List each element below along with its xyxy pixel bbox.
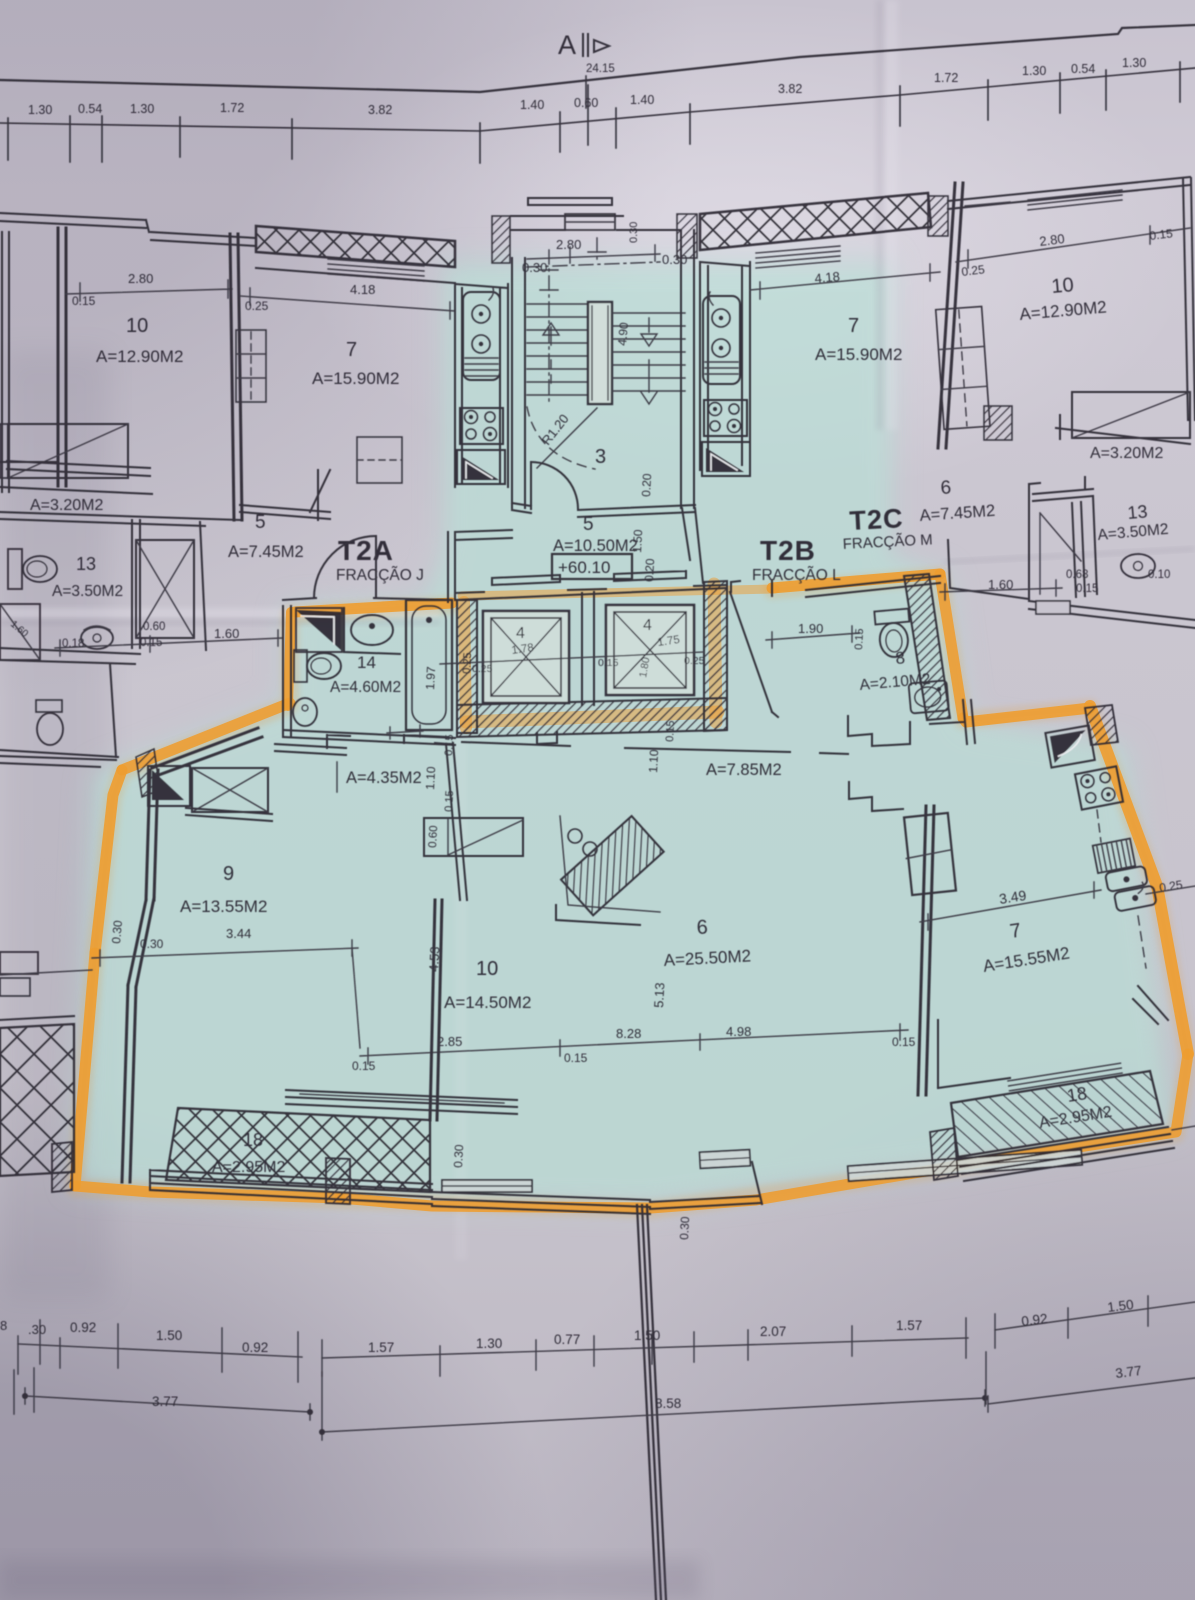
- svg-text:0.54: 0.54: [1071, 62, 1095, 76]
- svg-text:0.92: 0.92: [242, 1340, 268, 1355]
- svg-text:2.85: 2.85: [437, 1034, 462, 1049]
- svg-text:3: 3: [595, 446, 606, 468]
- svg-text:13: 13: [76, 554, 96, 574]
- svg-text:1.72: 1.72: [934, 71, 958, 85]
- svg-text:1.97: 1.97: [423, 666, 438, 690]
- svg-text:0.15: 0.15: [352, 1059, 376, 1073]
- svg-text:14: 14: [357, 653, 376, 672]
- svg-text:1.10: 1.10: [646, 749, 661, 773]
- svg-text:A=3.20M2: A=3.20M2: [30, 497, 103, 514]
- svg-text:1.30: 1.30: [28, 103, 52, 117]
- svg-text:0.60: 0.60: [143, 621, 165, 633]
- svg-text:1.50: 1.50: [156, 1328, 182, 1343]
- svg-text:+60.10: +60.10: [558, 558, 610, 577]
- svg-text:7: 7: [346, 339, 357, 361]
- svg-text:A=13.55M2: A=13.55M2: [180, 897, 267, 916]
- svg-text:0.15: 0.15: [853, 628, 866, 650]
- svg-text:5: 5: [255, 512, 266, 533]
- svg-text:1.57: 1.57: [896, 1318, 922, 1333]
- svg-text:2.80: 2.80: [1039, 231, 1066, 249]
- svg-text:A=15.90M2: A=15.90M2: [312, 369, 399, 388]
- svg-text:0.15: 0.15: [598, 657, 619, 669]
- svg-text:0.92: 0.92: [1021, 1311, 1049, 1329]
- svg-text:18: 18: [1065, 1083, 1088, 1106]
- svg-text:A=15.90M2: A=15.90M2: [815, 345, 902, 364]
- svg-text:1.57: 1.57: [368, 1340, 394, 1355]
- svg-text:10: 10: [126, 315, 148, 337]
- svg-text:0.30: 0.30: [628, 222, 640, 243]
- svg-text:0.25: 0.25: [684, 655, 705, 667]
- svg-text:3.82: 3.82: [368, 103, 392, 117]
- svg-text:1.30: 1.30: [476, 1336, 502, 1351]
- svg-text:0.15: 0.15: [140, 637, 162, 649]
- svg-text:.30: .30: [28, 1322, 46, 1337]
- svg-text:1.50: 1.50: [630, 529, 645, 553]
- svg-text:0.30: 0.30: [677, 1216, 692, 1240]
- svg-text:A=3.50M2: A=3.50M2: [52, 583, 123, 600]
- svg-text:A: A: [558, 30, 576, 60]
- svg-text:0.20: 0.20: [639, 473, 654, 497]
- svg-text:0.77: 0.77: [554, 1332, 580, 1347]
- svg-text:24.15: 24.15: [586, 63, 615, 75]
- svg-text:0.18: 0.18: [62, 638, 84, 650]
- svg-text:0.25: 0.25: [245, 299, 269, 313]
- svg-text:1.10: 1.10: [423, 766, 438, 790]
- svg-text:1.50: 1.50: [634, 1328, 660, 1343]
- svg-text:1.50: 1.50: [1107, 1297, 1135, 1315]
- svg-text:9: 9: [223, 863, 234, 885]
- svg-text:A=4.60M2: A=4.60M2: [330, 679, 401, 696]
- svg-text:8: 8: [0, 1318, 7, 1333]
- svg-text:3.77: 3.77: [152, 1394, 178, 1409]
- svg-text:0.15: 0.15: [1076, 583, 1098, 595]
- svg-text:10: 10: [476, 958, 498, 980]
- svg-text:4: 4: [643, 617, 652, 634]
- svg-text:5.13: 5.13: [651, 982, 667, 1008]
- svg-text:A=3.20M2: A=3.20M2: [1090, 445, 1163, 462]
- svg-text:0.60: 0.60: [427, 825, 440, 848]
- svg-text:T2A: T2A: [338, 535, 394, 566]
- svg-text:0.15: 0.15: [564, 1051, 588, 1065]
- svg-text:1.60: 1.60: [988, 577, 1013, 592]
- svg-text:2.80: 2.80: [556, 237, 581, 252]
- svg-text:7: 7: [848, 315, 859, 337]
- svg-text:1.30: 1.30: [130, 102, 154, 116]
- svg-text:FRACÇÃO J: FRACÇÃO J: [336, 567, 424, 584]
- svg-text:A=4.35M2: A=4.35M2: [346, 769, 422, 787]
- svg-text:4.90: 4.90: [615, 321, 631, 346]
- svg-text:T2B: T2B: [760, 535, 816, 566]
- svg-text:1.72: 1.72: [220, 101, 244, 115]
- svg-text:0.15: 0.15: [892, 1035, 916, 1049]
- svg-text:A=10.50M2: A=10.50M2: [553, 537, 638, 555]
- svg-text:6: 6: [696, 916, 708, 939]
- svg-text:0.30: 0.30: [140, 937, 164, 951]
- svg-text:0.15: 0.15: [1149, 226, 1174, 243]
- svg-text:0.25: 0.25: [961, 262, 986, 279]
- svg-text:3.77: 3.77: [1115, 1363, 1143, 1381]
- svg-text:A=12.90M2: A=12.90M2: [96, 347, 183, 366]
- svg-text:5: 5: [583, 514, 594, 535]
- svg-text:3.44: 3.44: [226, 926, 251, 941]
- svg-text:13: 13: [1127, 501, 1149, 523]
- svg-text:1.60: 1.60: [214, 626, 239, 641]
- svg-text:4.18: 4.18: [350, 282, 375, 297]
- svg-text:2.80: 2.80: [128, 271, 153, 286]
- svg-text:0.25: 0.25: [472, 663, 493, 675]
- svg-text:8.58: 8.58: [655, 1396, 681, 1411]
- svg-text:2.07: 2.07: [760, 1324, 786, 1339]
- svg-text:0.10: 0.10: [1148, 569, 1170, 581]
- svg-text:4.98: 4.98: [726, 1024, 751, 1039]
- svg-text:1.40: 1.40: [520, 98, 544, 112]
- svg-text:0.15: 0.15: [72, 294, 96, 308]
- svg-text:3.82: 3.82: [778, 82, 802, 96]
- svg-text:FRACÇÃO L: FRACÇÃO L: [752, 567, 841, 584]
- svg-text:0.60: 0.60: [574, 96, 598, 110]
- svg-text:1.90: 1.90: [798, 621, 823, 636]
- svg-text:0.30: 0.30: [522, 260, 547, 275]
- svg-text:8.28: 8.28: [616, 1026, 641, 1041]
- svg-text:18: 18: [243, 1130, 263, 1150]
- svg-text:0.15: 0.15: [664, 720, 677, 742]
- svg-text:1.30: 1.30: [1122, 56, 1146, 70]
- svg-text:10: 10: [1051, 274, 1075, 298]
- svg-text:0.54: 0.54: [78, 102, 102, 116]
- svg-text:8: 8: [895, 648, 906, 668]
- svg-text:0.30: 0.30: [109, 919, 125, 944]
- svg-text:T2C: T2C: [849, 503, 905, 536]
- svg-text:A=7.45M2: A=7.45M2: [228, 543, 304, 561]
- svg-text:0.92: 0.92: [70, 1320, 96, 1335]
- svg-text:0.30: 0.30: [451, 1144, 466, 1168]
- svg-text:A=7.85M2: A=7.85M2: [706, 761, 782, 779]
- svg-text:4: 4: [516, 625, 525, 642]
- svg-text:A=14.50M2: A=14.50M2: [444, 993, 531, 1012]
- svg-text:1.30: 1.30: [1022, 64, 1046, 78]
- svg-text:4.18: 4.18: [814, 269, 841, 286]
- svg-text:0.25: 0.25: [461, 652, 474, 674]
- svg-text:0.68: 0.68: [1066, 569, 1088, 581]
- svg-text:6: 6: [940, 477, 952, 499]
- svg-text:1.40: 1.40: [630, 93, 654, 107]
